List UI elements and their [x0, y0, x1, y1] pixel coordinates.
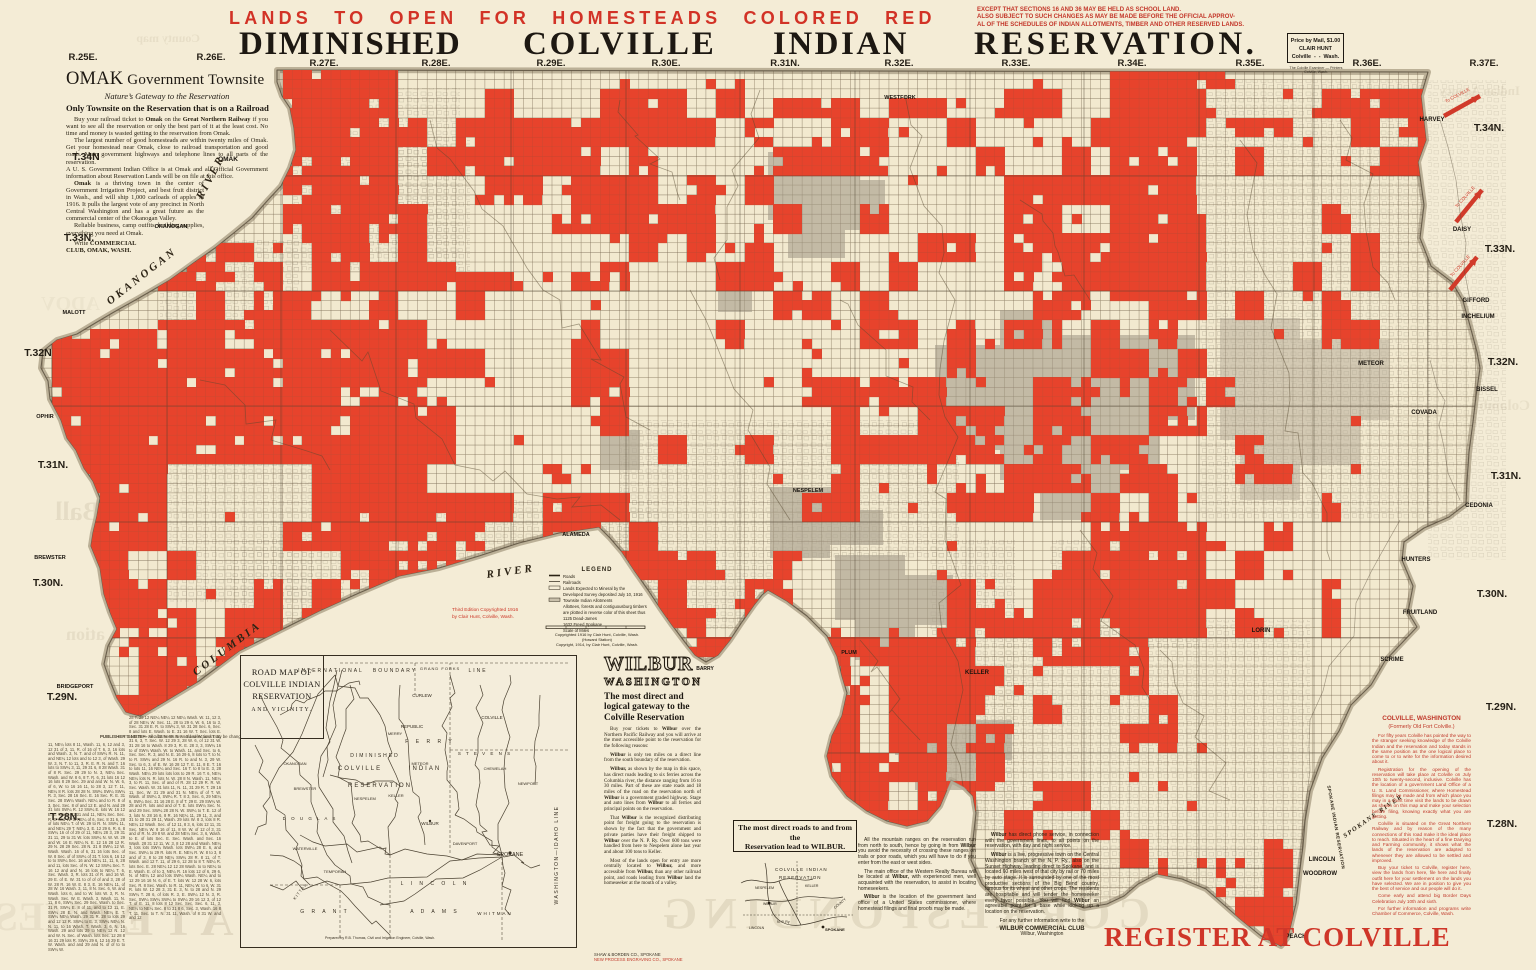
svg-text:Developed Survey deposited Jul: Developed Survey deposited July 10, 1916 — [563, 592, 643, 597]
svg-text:CURLEW: CURLEW — [412, 693, 432, 698]
svg-text:MERRY: MERRY — [388, 731, 403, 736]
svg-text:Third Edition Copyrighted 1: Third Edition Copyrighted 1916 — [452, 607, 518, 613]
svg-text:LEGEND: LEGEND — [581, 567, 612, 573]
svg-text:BREWSTER: BREWSTER — [34, 555, 66, 561]
svg-text:County map: County map — [136, 31, 200, 45]
svg-text:by Clair Hunt, Colville, W: by Clair Hunt, Colville, Wash. — [452, 614, 514, 620]
svg-text:NESPELEM: NESPELEM — [793, 488, 824, 494]
svg-text:T.31N.: T.31N. — [38, 459, 68, 471]
svg-text:OPHIR: OPHIR — [36, 414, 53, 420]
svg-text:WOODROW: WOODROW — [1303, 871, 1337, 877]
svg-text:CEDONIA: CEDONIA — [1465, 503, 1493, 509]
svg-text:HUNTERS: HUNTERS — [1401, 557, 1430, 563]
svg-text:S T E V E N S: S T E V E N S — [458, 751, 512, 756]
svg-text:T.32N: T.32N — [24, 347, 51, 359]
svg-text:LINCOLN: LINCOLN — [1309, 857, 1336, 863]
svg-text:Prepared by R.B. Thomas, Civil: Prepared by R.B. Thomas, Civil and Irrig… — [325, 936, 435, 940]
svg-text:D O U G L A S: D O U G L A S — [283, 816, 338, 821]
svg-text:Allottees, forests and contigu: Allottees, forests and contiguousburg ti… — [563, 604, 647, 609]
svg-text:NEWPORT: NEWPORT — [518, 781, 539, 786]
svg-text:Lands Expected to Mineral by t: Lands Expected to Mineral by the — [563, 586, 626, 591]
svg-text:COLVILLE: COLVILLE — [338, 766, 382, 772]
svg-text:PLUM: PLUM — [841, 650, 857, 656]
svg-text:WESTFORK: WESTFORK — [884, 95, 915, 101]
svg-text:RESERVATION: RESERVATION — [348, 783, 412, 789]
svg-text:T.33N.: T.33N. — [1485, 243, 1515, 255]
svg-text:T.31N.: T.31N. — [1491, 470, 1521, 482]
svg-text:1125 Dead-James: 1125 Dead-James — [563, 616, 597, 621]
svg-text:L I N C O L N: L I N C O L N — [401, 881, 470, 887]
svg-text:KELLER: KELLER — [805, 884, 819, 888]
svg-text:A D A M S: A D A M S — [410, 909, 460, 915]
svg-text:BREWSTER: BREWSTER — [294, 786, 317, 791]
svg-text:COUNTY: COUNTY — [833, 897, 847, 910]
svg-text:COLVILLE INDIAN: COLVILLE INDIAN — [775, 867, 828, 872]
svg-text:T.34N.: T.34N. — [1474, 122, 1504, 134]
svg-text:ALAMEDA: ALAMEDA — [562, 532, 590, 538]
svg-text:N. P. Ry: N. P. Ry — [777, 920, 790, 924]
svg-text:RESERVATION: RESERVATION — [779, 875, 822, 880]
svg-text:INTERNATIONAL: INTERNATIONAL — [298, 668, 364, 674]
svg-text:NESPELEM: NESPELEM — [755, 886, 774, 890]
svg-text:Railroads: Railroads — [563, 580, 581, 585]
svg-text:BOUNDARY: BOUNDARY — [373, 668, 417, 674]
svg-text:R.26E.: R.26E. — [196, 52, 225, 63]
svg-text:REPUBLIC: REPUBLIC — [401, 724, 424, 729]
svg-text:MALOTT: MALOTT — [63, 310, 87, 316]
svg-text:F E R R Y: F E R R Y — [405, 739, 454, 745]
svg-text:TEMPORAH: TEMPORAH — [324, 869, 347, 874]
svg-text:DAISY: DAISY — [1453, 227, 1471, 233]
svg-text:are plotted in reverse color o: are plotted in reverse color of this she… — [563, 610, 645, 615]
svg-text:WASHINGTON—IDAHO LINE: WASHINGTON—IDAHO LINE — [554, 805, 560, 904]
svg-text:GRAND FORKS: GRAND FORKS — [420, 666, 460, 671]
svg-text:WHITMAN: WHITMAN — [477, 911, 513, 916]
svg-text:BRIDGEPORT: BRIDGEPORT — [57, 684, 94, 690]
svg-text:T.32N.: T.32N. — [1488, 356, 1518, 368]
svg-text:Townsite Indian Allotments: Townsite Indian Allotments — [563, 598, 612, 603]
svg-text:KELLER: KELLER — [388, 793, 403, 798]
svg-text:NESPELEM: NESPELEM — [354, 796, 376, 801]
svg-text:SPOKANE: SPOKANE — [825, 927, 845, 932]
svg-text:ation: ation — [66, 624, 105, 644]
svg-text:BISSEL: BISSEL — [1476, 387, 1498, 393]
svg-text:LORIN: LORIN — [1252, 628, 1271, 634]
svg-text:FRUITLAND: FRUITLAND — [1403, 610, 1438, 616]
svg-text:G R A N T: G R A N T — [300, 909, 349, 915]
svg-text:T.29N.: T.29N. — [1486, 701, 1516, 713]
svg-text:OKANOGAN: OKANOGAN — [283, 761, 306, 766]
svg-text:R.37E.: R.37E. — [1469, 58, 1498, 69]
svg-text:R.36E.: R.36E. — [1352, 58, 1381, 69]
svg-text:WATERVILLE: WATERVILLE — [293, 846, 318, 851]
svg-text:T.28N.: T.28N. — [1487, 818, 1517, 830]
svg-text:COLVILLE: COLVILLE — [481, 715, 502, 720]
svg-text:Copyright, 1914, by Clair Hunt: Copyright, 1914, by Clair Hunt, Colville… — [556, 642, 638, 647]
svg-text:T.30N.: T.30N. — [33, 577, 63, 589]
svg-text:LINE: LINE — [468, 668, 487, 674]
svg-text:GIFFORD: GIFFORD — [1463, 298, 1491, 304]
svg-text:R.25E.: R.25E. — [68, 52, 97, 63]
svg-text:METEOR: METEOR — [411, 761, 428, 766]
svg-text:SCRIME: SCRIME — [1380, 657, 1403, 663]
svg-text:DAVENPORT: DAVENPORT — [453, 841, 478, 846]
svg-text:K I T T A S: K I T T A S — [292, 882, 308, 900]
svg-text:DIMINISHED: DIMINISHED — [350, 753, 399, 759]
svg-text:CHEWELAH: CHEWELAH — [484, 766, 507, 771]
svg-text:KELLER: KELLER — [965, 670, 990, 676]
svg-text:COVADA: COVADA — [1411, 410, 1437, 416]
svg-text:LINCOLN: LINCOLN — [749, 926, 765, 930]
svg-text:METEOR: METEOR — [1358, 361, 1384, 367]
svg-text:T.29N.: T.29N. — [47, 691, 77, 703]
svg-text:T.30N.: T.30N. — [1477, 588, 1507, 600]
svg-text:INCHELIUM: INCHELIUM — [1461, 314, 1494, 320]
svg-text:Roads: Roads — [563, 574, 575, 579]
svg-text:INDIAN: INDIAN — [409, 766, 441, 772]
